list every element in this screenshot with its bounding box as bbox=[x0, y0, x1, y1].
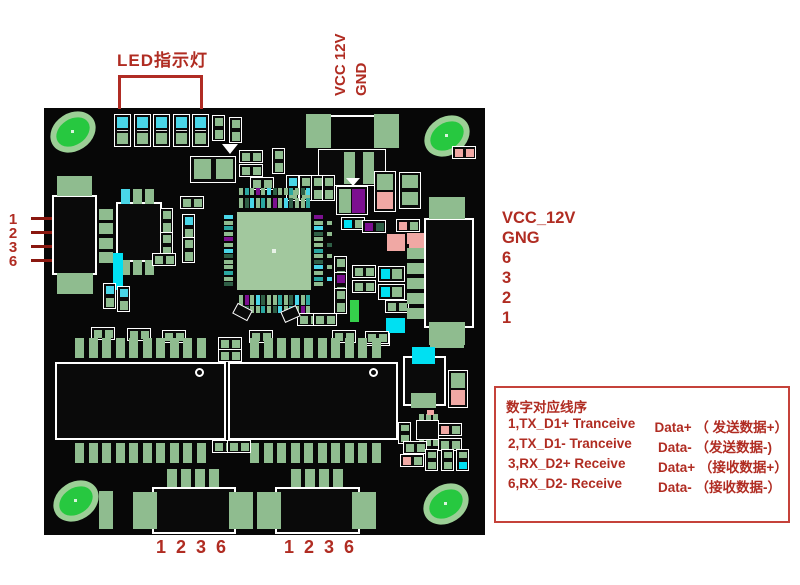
pcb-pad bbox=[163, 223, 171, 232]
pcb-pad bbox=[289, 178, 297, 187]
pcb-pad bbox=[459, 462, 467, 469]
bottom-pin-number: 3 bbox=[196, 537, 206, 558]
qfp-pin bbox=[314, 282, 323, 286]
pcb-pad bbox=[156, 130, 167, 132]
bottom-pin-number: 2 bbox=[304, 537, 314, 558]
bottom-pin-number: 3 bbox=[324, 537, 334, 558]
pcb-pad bbox=[428, 462, 436, 469]
qfp-pin bbox=[327, 265, 332, 269]
legend-data: Data- （发送数据-) bbox=[658, 436, 772, 456]
left-connector-pin bbox=[99, 223, 113, 234]
hole-highlight bbox=[71, 130, 74, 133]
legend-signal: 6,RX_D2- Receive bbox=[508, 476, 658, 496]
transformer-pin bbox=[102, 338, 111, 358]
pcb-pad bbox=[215, 118, 223, 127]
transformer-pin bbox=[156, 443, 165, 463]
transformer-pin bbox=[75, 338, 84, 358]
pcb-pad bbox=[176, 117, 187, 128]
pcb-pad bbox=[410, 222, 418, 230]
bottom-pin-number: 2 bbox=[176, 537, 186, 558]
qfp-pin bbox=[267, 198, 271, 208]
pcb-pad bbox=[272, 249, 276, 253]
pcb-pad bbox=[176, 130, 187, 132]
qfp-pin bbox=[250, 198, 254, 208]
pcb-pad bbox=[352, 189, 365, 213]
pcb-pad bbox=[316, 316, 324, 324]
pcb-pad bbox=[339, 189, 351, 213]
bottom-connector-1 bbox=[152, 487, 236, 534]
pcb-pad bbox=[133, 492, 157, 529]
bottom-pins-left-group: 1 2 3 6 bbox=[156, 537, 226, 558]
qfp-pin bbox=[314, 271, 323, 275]
pcb-pad bbox=[325, 178, 333, 187]
pcb-pad bbox=[117, 133, 128, 144]
pcb-pad bbox=[355, 268, 363, 276]
qfp-pin bbox=[306, 306, 310, 313]
right-connector-pin bbox=[407, 293, 424, 304]
qfp-pin bbox=[224, 277, 233, 281]
qfp-pin bbox=[314, 226, 323, 230]
legend-data: Data+ （接收数据+） bbox=[658, 456, 788, 476]
pcb-pad bbox=[145, 189, 154, 204]
left-pin-number: 6 bbox=[6, 253, 20, 270]
transformer-pin bbox=[318, 338, 327, 358]
pcb-pad bbox=[232, 340, 240, 348]
left-connector-outline bbox=[52, 195, 97, 275]
qfp-pin bbox=[245, 295, 249, 305]
qfp-pin bbox=[250, 188, 254, 195]
pcb-pad bbox=[232, 120, 240, 129]
pcb-pad bbox=[137, 117, 148, 128]
pcb-pad bbox=[105, 330, 113, 338]
pcb-pad bbox=[183, 199, 191, 207]
power-pad bbox=[306, 114, 331, 148]
pcb-pad bbox=[275, 151, 283, 160]
pcb-pad bbox=[459, 452, 467, 459]
pcb-pad bbox=[331, 115, 374, 117]
silk-arrow bbox=[222, 144, 238, 154]
pcb-pad bbox=[117, 117, 128, 128]
pcb-pad bbox=[120, 289, 128, 298]
bottom-connector-2 bbox=[275, 487, 360, 534]
bottom-pin-number: 1 bbox=[156, 537, 166, 558]
transformer-pin bbox=[277, 443, 286, 463]
pcb-pad bbox=[257, 492, 281, 529]
qfp-pin bbox=[284, 198, 288, 208]
pcb-pad bbox=[444, 462, 452, 469]
pcb-pad bbox=[137, 133, 148, 144]
bottom-connector-pin bbox=[195, 469, 205, 487]
led-indicator-label: LED指示灯 bbox=[117, 51, 208, 71]
pcb-pad bbox=[365, 223, 373, 231]
qfp-pin bbox=[224, 249, 233, 253]
transformer-pin bbox=[197, 338, 206, 358]
qfp-pin bbox=[239, 188, 243, 195]
pcb-pad bbox=[133, 260, 142, 275]
pcb-pad bbox=[176, 133, 187, 144]
pcb-pad bbox=[185, 252, 193, 261]
silk-circle bbox=[195, 368, 204, 377]
transformer-pin bbox=[345, 443, 354, 463]
transformer-pin bbox=[372, 443, 381, 463]
pcb-pad bbox=[337, 291, 345, 300]
transformer-pin bbox=[331, 338, 340, 358]
qfp-pin bbox=[224, 243, 233, 247]
right-panel-vcc: VCC_12V bbox=[502, 208, 575, 228]
transformer-pin bbox=[183, 338, 192, 358]
legend-row: 2,TX_D1- Tranceive Data- （发送数据-) bbox=[508, 436, 788, 456]
qfp-pin bbox=[256, 306, 260, 313]
legend-signal: 1,TX_D1+ Tranceive bbox=[508, 416, 654, 436]
top-power-line1: VCC 12V bbox=[330, 16, 351, 96]
pcb-pad bbox=[99, 491, 113, 529]
transformer-pin bbox=[331, 443, 340, 463]
pcb-pad bbox=[156, 133, 167, 144]
qfp-pin bbox=[295, 188, 299, 195]
transformer-pin bbox=[304, 338, 313, 358]
transformer-pin bbox=[116, 443, 125, 463]
qfp-pin bbox=[224, 254, 233, 258]
pcb-pad bbox=[399, 222, 407, 230]
qfp-pin bbox=[261, 188, 265, 195]
qfp-pin bbox=[224, 271, 233, 275]
qfp-pin bbox=[284, 295, 288, 305]
pcb-pad bbox=[401, 425, 409, 432]
legend-data: Data- （接收数据-） bbox=[658, 476, 781, 496]
qfp-pin bbox=[256, 188, 260, 195]
qfp-pin bbox=[289, 188, 293, 195]
right-panel-gng: GNG bbox=[502, 228, 575, 248]
pcb-pad bbox=[300, 316, 308, 324]
pcb-pad bbox=[451, 373, 465, 388]
right-pin-number: 6 bbox=[502, 248, 575, 268]
qfp-pin bbox=[273, 295, 277, 305]
pcb-pad bbox=[455, 149, 463, 157]
qfp-pin bbox=[327, 254, 332, 258]
transformer-pin bbox=[291, 338, 300, 358]
legend-title: 数字对应线序 bbox=[506, 396, 788, 416]
pcb-pad bbox=[428, 452, 436, 459]
qfp-pin bbox=[261, 295, 265, 305]
transformer-pin bbox=[358, 443, 367, 463]
qfp-pin bbox=[250, 295, 254, 305]
transformer-pin bbox=[304, 443, 313, 463]
qfp-pin bbox=[224, 260, 233, 264]
pcb-pad bbox=[215, 443, 223, 451]
pcb-pad bbox=[376, 223, 384, 231]
pcb-pad bbox=[337, 259, 345, 268]
qfp-pin bbox=[301, 295, 305, 305]
qfp-pin bbox=[306, 198, 310, 208]
transformer-pin bbox=[89, 338, 98, 358]
qfp-pin bbox=[327, 243, 332, 247]
qfp-pin bbox=[327, 232, 332, 236]
pcb-pad bbox=[195, 133, 206, 144]
pcb-pad bbox=[229, 492, 253, 529]
legend-row: 1,TX_D1+ Tranceive Data+ （ 发送数据+） bbox=[508, 416, 788, 436]
qfp-pin bbox=[261, 306, 265, 313]
bottom-connector-pin bbox=[167, 469, 177, 487]
pcb-pad bbox=[185, 240, 193, 249]
pcb-pad bbox=[414, 457, 422, 465]
pcb-pad bbox=[466, 149, 474, 157]
transformer-pin bbox=[291, 443, 300, 463]
pcb-pad bbox=[302, 178, 310, 187]
pcb-pad bbox=[314, 178, 322, 187]
pcb-pad bbox=[137, 130, 148, 132]
pcb-pad bbox=[253, 167, 261, 175]
bottom-pin-number: 6 bbox=[216, 537, 226, 558]
pcb-pad bbox=[242, 167, 250, 175]
left-connector-pin bbox=[99, 252, 113, 263]
pcb-pad bbox=[452, 441, 460, 449]
qfp-pin bbox=[224, 265, 233, 269]
qfp-pin bbox=[314, 237, 323, 241]
pcb-pad bbox=[355, 283, 363, 291]
transformer-pin bbox=[183, 443, 192, 463]
qfp-pin bbox=[273, 306, 277, 313]
qfp-pin bbox=[273, 198, 277, 208]
silk-circle bbox=[369, 368, 378, 377]
qfp-pin bbox=[239, 198, 243, 208]
transformer-pin bbox=[372, 338, 381, 358]
qfp-pin bbox=[256, 198, 260, 208]
pcb-pad bbox=[441, 441, 449, 449]
pcb-pad bbox=[264, 180, 272, 188]
pcb-pad bbox=[377, 174, 393, 190]
qfp-pin bbox=[295, 295, 299, 305]
right-connector-pin bbox=[407, 278, 424, 289]
qfp-pin bbox=[295, 198, 299, 208]
pcb-pad bbox=[94, 330, 102, 338]
pcb-pad bbox=[314, 190, 322, 199]
pcb-pad bbox=[399, 303, 407, 311]
legend-data: Data+ （ 发送数据+） bbox=[654, 416, 788, 436]
pcb-pad bbox=[403, 457, 411, 465]
transformer-pin bbox=[264, 443, 273, 463]
pcb-pad bbox=[155, 256, 163, 264]
screenshot-root: LED指示灯 VCC 12V GND 1 2 3 6 VCC_12V GNG 6… bbox=[0, 0, 800, 585]
qfp-pin bbox=[267, 188, 271, 195]
soic8-pin bbox=[419, 414, 424, 420]
qfp-pin bbox=[224, 282, 233, 286]
pcb-pad bbox=[163, 211, 171, 220]
qfp-pin bbox=[301, 188, 305, 195]
qfp-pin bbox=[224, 237, 233, 241]
transformer-pin bbox=[156, 338, 165, 358]
transformer-pin bbox=[89, 443, 98, 463]
pcb-pad bbox=[392, 287, 402, 297]
pcb-pad bbox=[444, 452, 452, 459]
pcb-pad bbox=[387, 234, 405, 251]
qfp-pin bbox=[289, 295, 293, 305]
pcb-pad bbox=[133, 189, 142, 204]
qfp-pin bbox=[278, 198, 282, 208]
pcb-pad bbox=[195, 117, 206, 128]
power-pad bbox=[374, 114, 399, 148]
transformer-pin bbox=[143, 443, 152, 463]
transformer-pin bbox=[318, 443, 327, 463]
pcb-pad bbox=[452, 426, 460, 434]
right-connector-pin bbox=[407, 248, 424, 259]
pcb-pad bbox=[230, 443, 238, 451]
wiring-legend-box: 数字对应线序 1,TX_D1+ Tranceive Data+ （ 发送数据+）… bbox=[494, 386, 790, 523]
qfp-pin bbox=[314, 277, 323, 281]
qfp-pin bbox=[224, 232, 233, 236]
transformer-pin bbox=[345, 338, 354, 358]
silk-arrow bbox=[346, 178, 360, 186]
pcb-pad bbox=[221, 340, 229, 348]
pcb-pad bbox=[194, 159, 211, 179]
qfp-pin bbox=[224, 226, 233, 230]
qfp-pin bbox=[278, 295, 282, 305]
pcb-pad bbox=[275, 163, 283, 172]
qfp-pin bbox=[278, 188, 282, 195]
pcb-pad bbox=[366, 283, 374, 291]
pcb-pad bbox=[195, 130, 206, 132]
qfp-pin bbox=[306, 188, 310, 195]
transformer-pin bbox=[129, 443, 138, 463]
bottom-connector-pin bbox=[333, 469, 343, 487]
pcb-pad bbox=[232, 132, 240, 141]
led-bracket-line bbox=[118, 75, 121, 109]
pcb-pad bbox=[427, 410, 434, 415]
bottom-pins-right-group: 1 2 3 6 bbox=[284, 537, 354, 558]
pcb-pad bbox=[117, 130, 128, 132]
qfp-pin bbox=[314, 221, 323, 225]
transformer-pin bbox=[116, 338, 125, 358]
bottom-connector-pin bbox=[209, 469, 219, 487]
transformer-pin bbox=[129, 338, 138, 358]
qfp-pin bbox=[314, 232, 323, 236]
qfp-pin bbox=[301, 306, 305, 313]
pcb-pad bbox=[451, 390, 465, 405]
hole-highlight bbox=[74, 499, 77, 502]
transformer-pin bbox=[277, 338, 286, 358]
right-pin-number: 2 bbox=[502, 288, 575, 308]
legend-signal: 2,TX_D1- Tranceive bbox=[508, 436, 658, 456]
led-bar bbox=[350, 300, 359, 322]
pcb-pad bbox=[325, 190, 333, 199]
bottom-pin-number: 1 bbox=[284, 537, 294, 558]
bottom-connector-pin bbox=[181, 469, 191, 487]
qfp-pin bbox=[301, 198, 305, 208]
pcb-pad bbox=[241, 443, 249, 451]
pcb-pad bbox=[216, 159, 233, 179]
qfp-pin bbox=[327, 221, 332, 225]
pcb-pad bbox=[430, 332, 464, 348]
pcb-pad bbox=[57, 273, 93, 294]
pcb-pad bbox=[377, 192, 393, 209]
qfp-pin bbox=[327, 277, 332, 281]
pcb-pad bbox=[242, 153, 250, 161]
pcb-pad bbox=[392, 269, 402, 279]
pcb-pad bbox=[441, 426, 449, 434]
qfp-pin bbox=[245, 198, 249, 208]
qfp-pin bbox=[267, 306, 271, 313]
right-connector-outline bbox=[424, 218, 474, 328]
qfp-pin bbox=[314, 265, 323, 269]
pcb-pad bbox=[185, 217, 193, 226]
qfp-pin bbox=[273, 188, 277, 195]
pcb-pad bbox=[156, 117, 167, 128]
pcb-pad bbox=[163, 235, 171, 244]
transformer-pin bbox=[264, 338, 273, 358]
qfp-pin bbox=[245, 188, 249, 195]
transformer-pin bbox=[102, 443, 111, 463]
left-connector-pin bbox=[99, 209, 113, 220]
qfp-pin bbox=[261, 198, 265, 208]
pcb-pad bbox=[402, 192, 418, 205]
transformer-pin bbox=[143, 338, 152, 358]
pcb-pad bbox=[406, 444, 414, 452]
legend-row: 3,RX_D2+ Receive Data+ （接收数据+） bbox=[508, 456, 788, 476]
led-bracket-line bbox=[200, 75, 203, 109]
transformer-pin bbox=[170, 443, 179, 463]
bottom-connector-pin bbox=[319, 469, 329, 487]
pcb-pad bbox=[402, 175, 418, 188]
pcb-pad bbox=[344, 220, 352, 228]
pcb-pad bbox=[194, 199, 202, 207]
bottom-pin-number: 6 bbox=[344, 537, 354, 558]
qfp-pin bbox=[306, 295, 310, 305]
transformer-pin bbox=[250, 443, 259, 463]
qfp-pin bbox=[314, 243, 323, 247]
soic8-chip bbox=[416, 420, 439, 440]
hole-highlight bbox=[444, 502, 447, 505]
qfp-pin bbox=[314, 249, 323, 253]
right-connector-pin bbox=[407, 263, 424, 274]
pcb-pad bbox=[412, 347, 435, 364]
pcb-pad bbox=[337, 275, 345, 284]
pcb-pad bbox=[253, 153, 261, 161]
qfp-pin bbox=[314, 215, 323, 219]
qfp-pin bbox=[224, 215, 233, 219]
qfp-pin bbox=[289, 198, 293, 208]
right-connector-pin bbox=[407, 308, 424, 319]
transformer-pin bbox=[197, 443, 206, 463]
pcb-pad bbox=[381, 287, 390, 297]
pcb-pad bbox=[57, 176, 92, 196]
transformer-pin bbox=[250, 338, 259, 358]
legend-row: 6,RX_D2- Receive Data- （接收数据-） bbox=[508, 476, 788, 496]
transformer-pin bbox=[170, 338, 179, 358]
qfp-pin bbox=[314, 260, 323, 264]
right-connector-pin bbox=[407, 233, 424, 244]
bottom-connector-pin bbox=[291, 469, 301, 487]
right-power-panel: VCC_12V GNG 6 3 2 1 bbox=[502, 208, 575, 328]
pcb-pad bbox=[120, 301, 128, 310]
qfp-pin bbox=[224, 221, 233, 225]
transformer-pin bbox=[358, 338, 367, 358]
qfp-pin bbox=[267, 295, 271, 305]
pcb-pad bbox=[352, 492, 376, 529]
pcb-pad bbox=[215, 130, 223, 139]
right-pin-number: 1 bbox=[502, 308, 575, 328]
qfp-pin bbox=[256, 295, 260, 305]
transformer-pin bbox=[75, 443, 84, 463]
legend-signal: 3,RX_D2+ Receive bbox=[508, 456, 658, 476]
right-pin-number: 3 bbox=[502, 268, 575, 288]
pcb-pad bbox=[411, 393, 436, 408]
qfp-pin bbox=[314, 254, 323, 258]
pcb-pad bbox=[166, 256, 174, 264]
pcb-pad bbox=[106, 298, 114, 307]
led-bracket-line bbox=[118, 75, 203, 78]
pcb-pad bbox=[417, 444, 425, 452]
pcb-pad bbox=[221, 352, 229, 360]
bottom-connector-pin bbox=[305, 469, 315, 487]
